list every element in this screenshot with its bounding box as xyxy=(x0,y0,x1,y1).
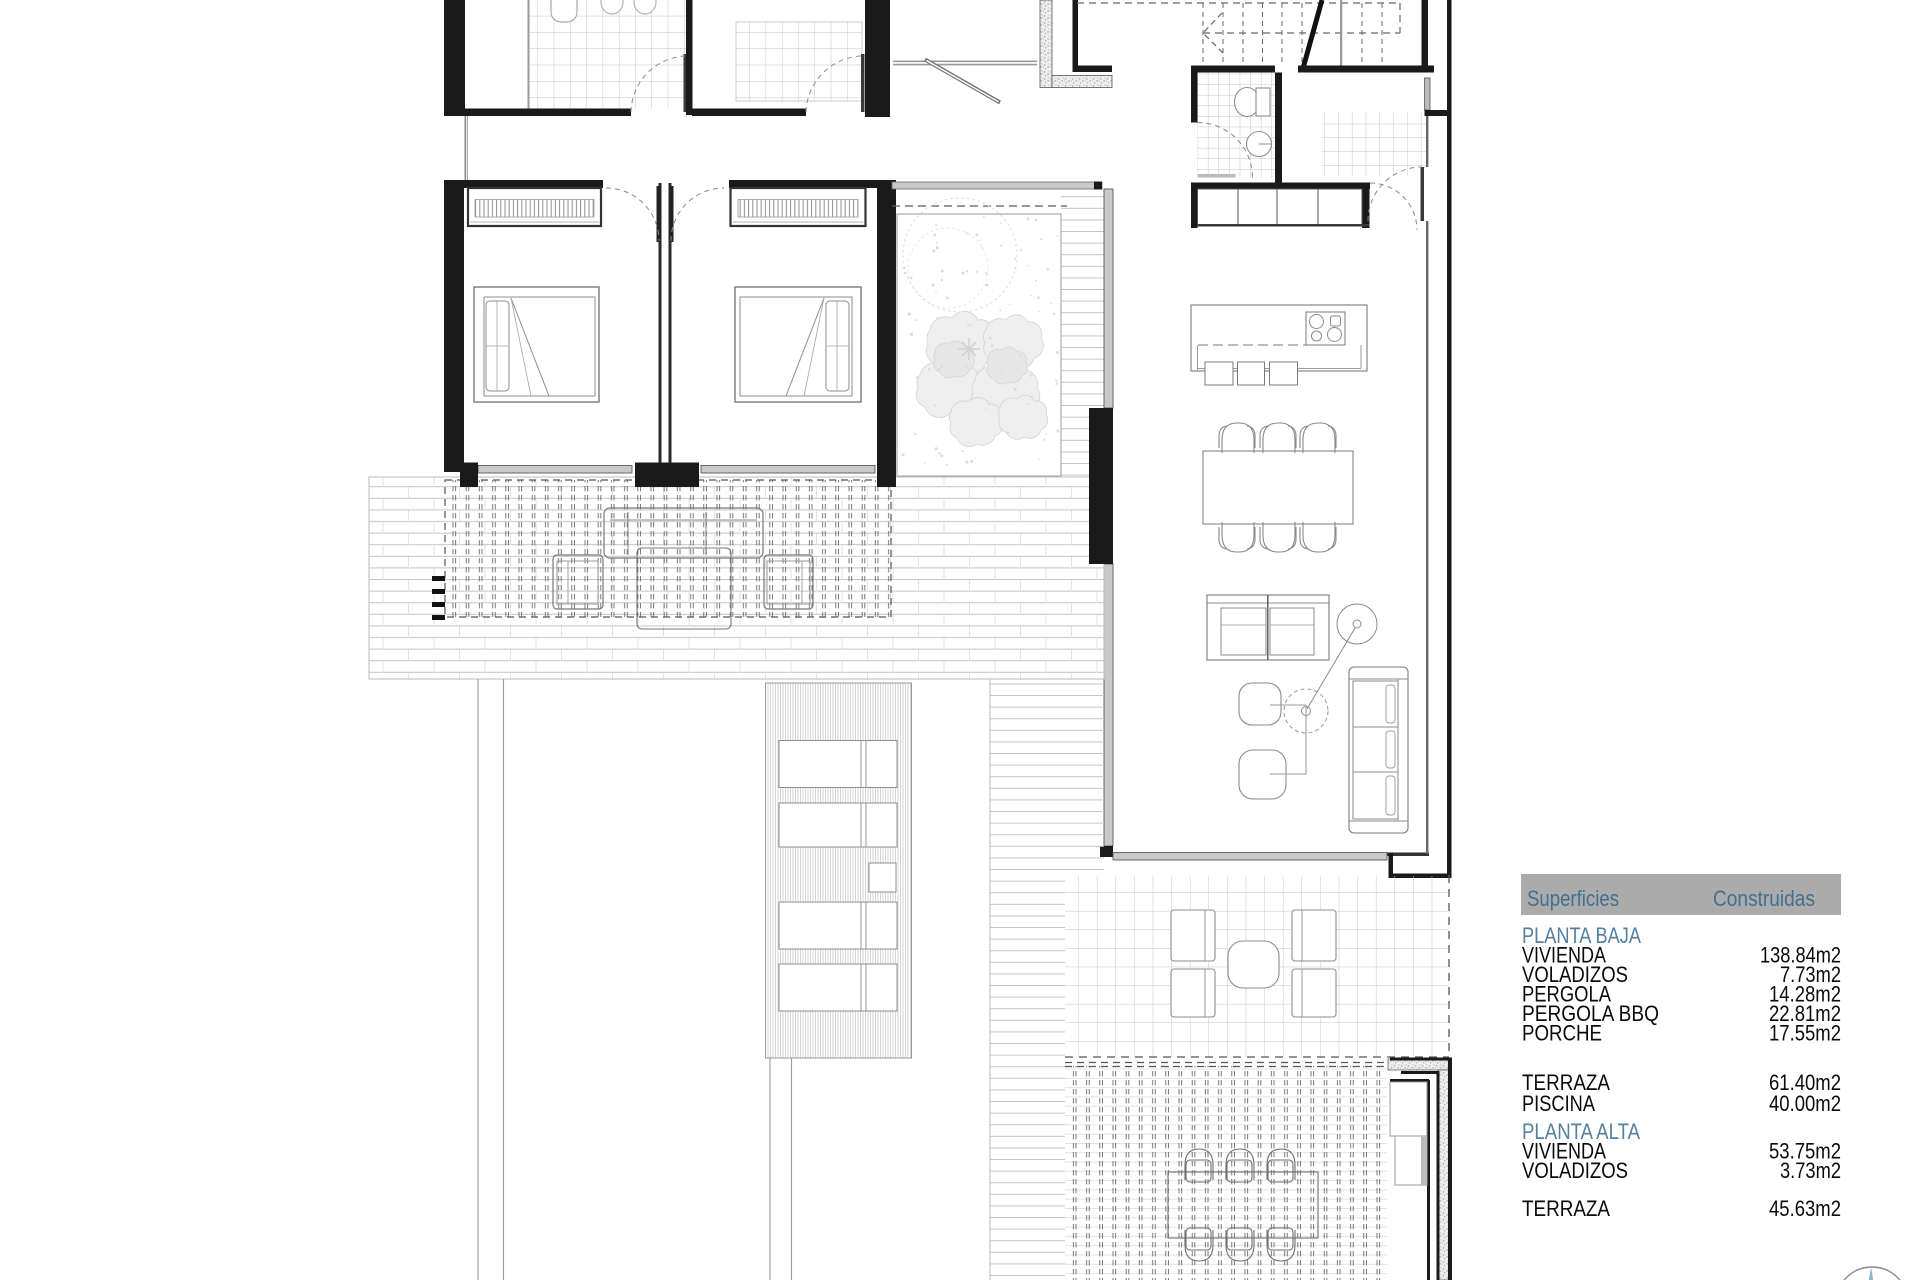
svg-text:3.73m2: 3.73m2 xyxy=(1780,1158,1841,1183)
svg-text:45.63m2: 45.63m2 xyxy=(1769,1196,1841,1221)
svg-text:VOLADIZOS: VOLADIZOS xyxy=(1522,1158,1628,1183)
svg-text:PORCHE: PORCHE xyxy=(1522,1021,1602,1046)
svg-text:17.55m2: 17.55m2 xyxy=(1769,1021,1841,1046)
svg-text:40.00m2: 40.00m2 xyxy=(1769,1091,1841,1116)
svg-text:TERRAZA: TERRAZA xyxy=(1522,1196,1610,1221)
svg-text:Construidas: Construidas xyxy=(1713,886,1815,911)
svg-text:PISCINA: PISCINA xyxy=(1522,1091,1595,1116)
svg-text:Superficies: Superficies xyxy=(1527,886,1619,911)
